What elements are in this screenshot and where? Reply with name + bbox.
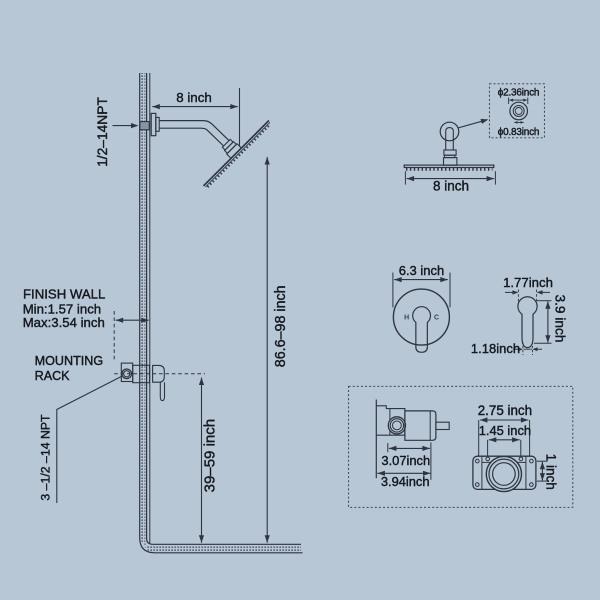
svg-text:FINISH WALL: FINISH WALL <box>23 286 105 301</box>
svg-text:3.94inch: 3.94inch <box>381 474 430 489</box>
svg-text:2.75 inch: 2.75 inch <box>478 403 532 418</box>
svg-text:3.07inch: 3.07inch <box>381 453 430 468</box>
svg-text:1/2–14NPT: 1/2–14NPT <box>95 97 110 167</box>
svg-text:1 inch: 1 inch <box>544 454 559 490</box>
svg-text:1.77inch: 1.77inch <box>503 275 553 290</box>
svg-text:ϕ2.36inch: ϕ2.36inch <box>498 88 540 99</box>
svg-text:1.45 inch: 1.45 inch <box>479 423 531 438</box>
svg-text:3.9 inch: 3.9 inch <box>553 295 568 343</box>
svg-text:8 inch: 8 inch <box>176 90 211 105</box>
svg-text:1.18inch: 1.18inch <box>471 341 520 356</box>
svg-text:6.3 inch: 6.3 inch <box>399 263 445 278</box>
svg-text:3 –1/2 –14 NPT: 3 –1/2 –14 NPT <box>39 414 53 501</box>
svg-text:39–59 inch: 39–59 inch <box>202 419 219 492</box>
svg-text:RACK: RACK <box>35 369 71 383</box>
svg-text:H: H <box>404 314 409 321</box>
svg-text:Max:3.54 inch: Max:3.54 inch <box>23 315 105 330</box>
svg-text:MOUNTING: MOUNTING <box>35 354 104 368</box>
svg-text:C: C <box>434 314 439 321</box>
svg-text:8 inch: 8 inch <box>433 179 469 194</box>
svg-text:86.6–98 inch: 86.6–98 inch <box>273 285 289 367</box>
svg-text:ϕ0.83inch: ϕ0.83inch <box>498 127 540 138</box>
